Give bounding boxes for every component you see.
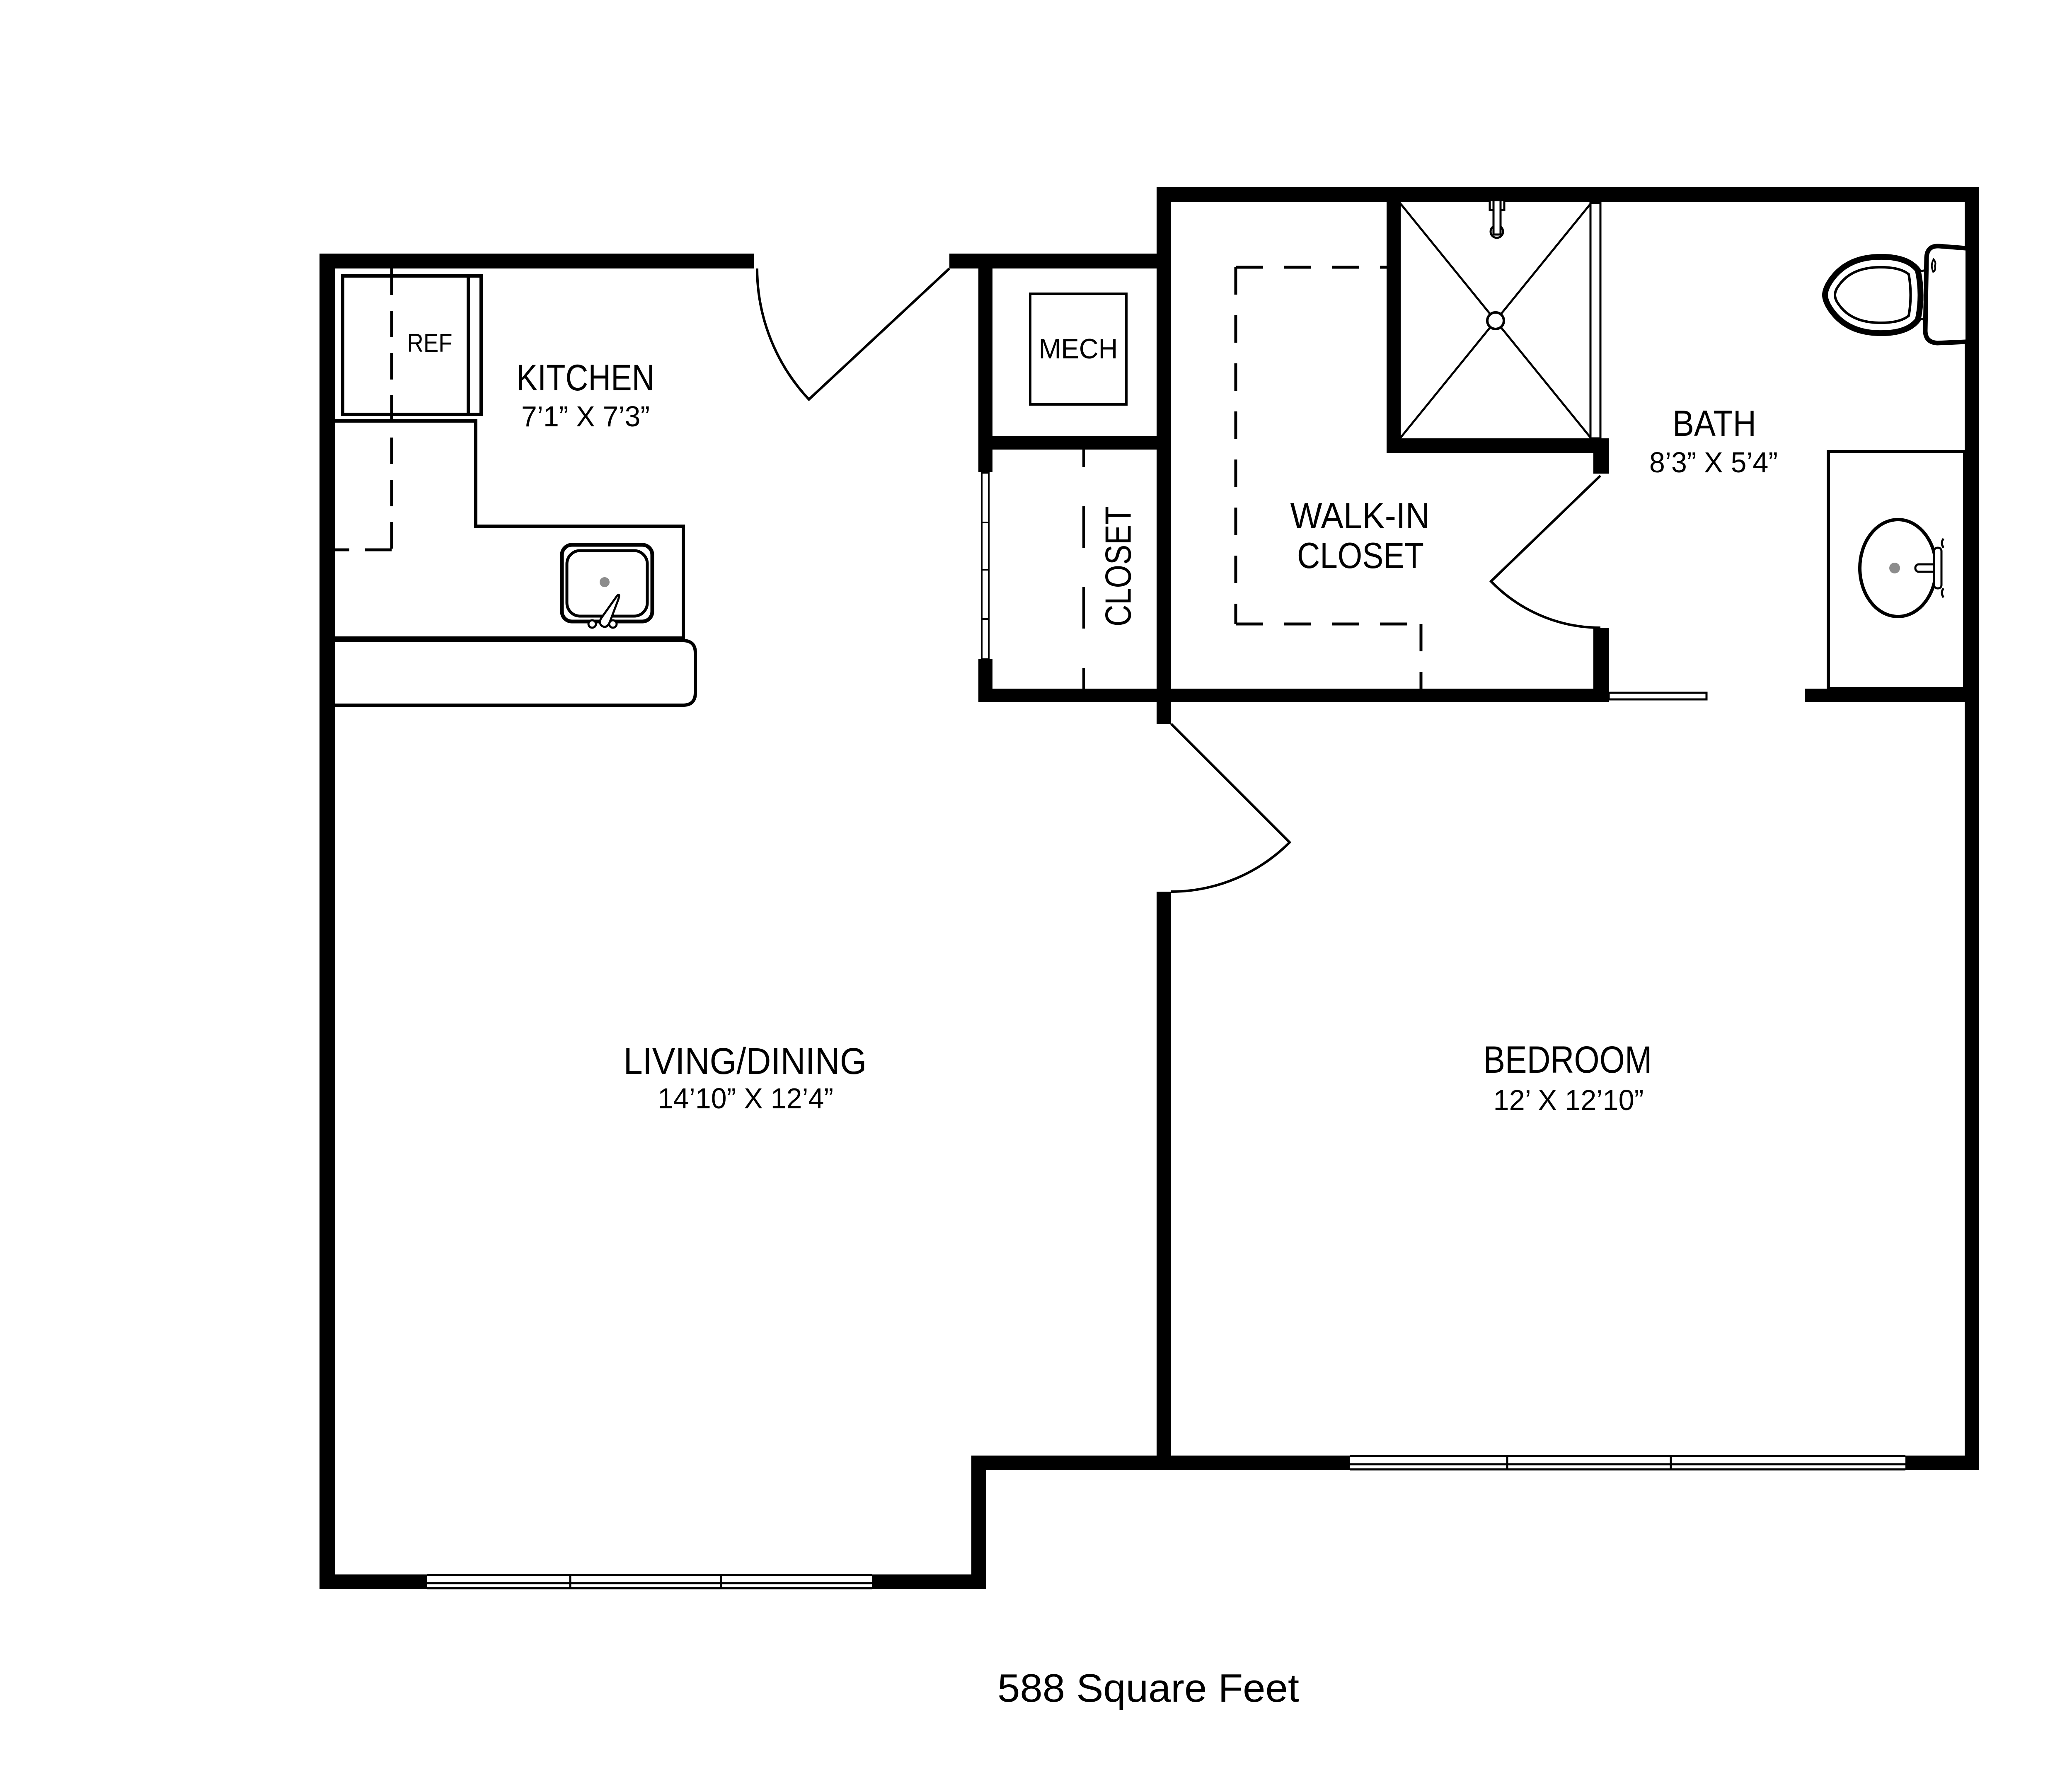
svg-text:CLOSET: CLOSET — [1297, 535, 1424, 576]
svg-text:REF: REF — [407, 329, 453, 358]
svg-text:7’1” X 7’3”: 7’1” X 7’3” — [521, 400, 650, 433]
svg-text:BATH: BATH — [1673, 403, 1756, 444]
svg-text:12’ X 12’10”: 12’ X 12’10” — [1493, 1084, 1644, 1116]
svg-text:MECH: MECH — [1039, 333, 1118, 365]
svg-text:LIVING/DINING: LIVING/DINING — [624, 1041, 867, 1082]
svg-text:WALK-IN: WALK-IN — [1290, 495, 1430, 536]
svg-text:8’3” X 5’4”: 8’3” X 5’4” — [1649, 446, 1778, 479]
svg-text:588 Square Feet: 588 Square Feet — [997, 1666, 1299, 1710]
svg-text:14’10” X 12’4”: 14’10” X 12’4” — [658, 1082, 833, 1115]
svg-text:KITCHEN: KITCHEN — [517, 357, 655, 398]
svg-text:BEDROOM: BEDROOM — [1484, 1039, 1652, 1081]
svg-text:CLOSET: CLOSET — [1098, 506, 1139, 626]
